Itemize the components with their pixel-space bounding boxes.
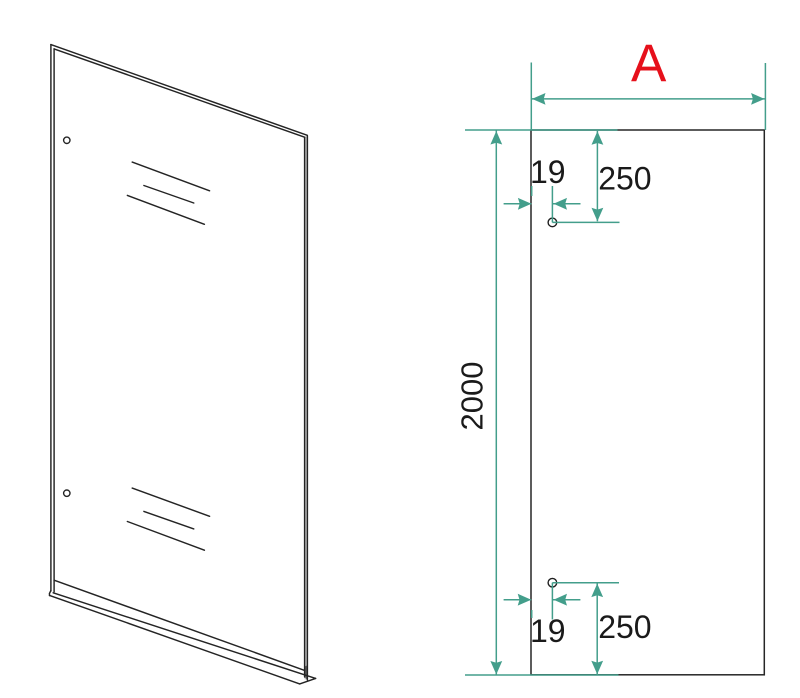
svg-text:19: 19 xyxy=(530,613,566,649)
svg-text:A: A xyxy=(631,34,667,93)
svg-text:250: 250 xyxy=(598,609,651,645)
svg-text:19: 19 xyxy=(530,154,566,190)
svg-text:250: 250 xyxy=(598,161,651,197)
svg-text:2000: 2000 xyxy=(455,362,490,431)
